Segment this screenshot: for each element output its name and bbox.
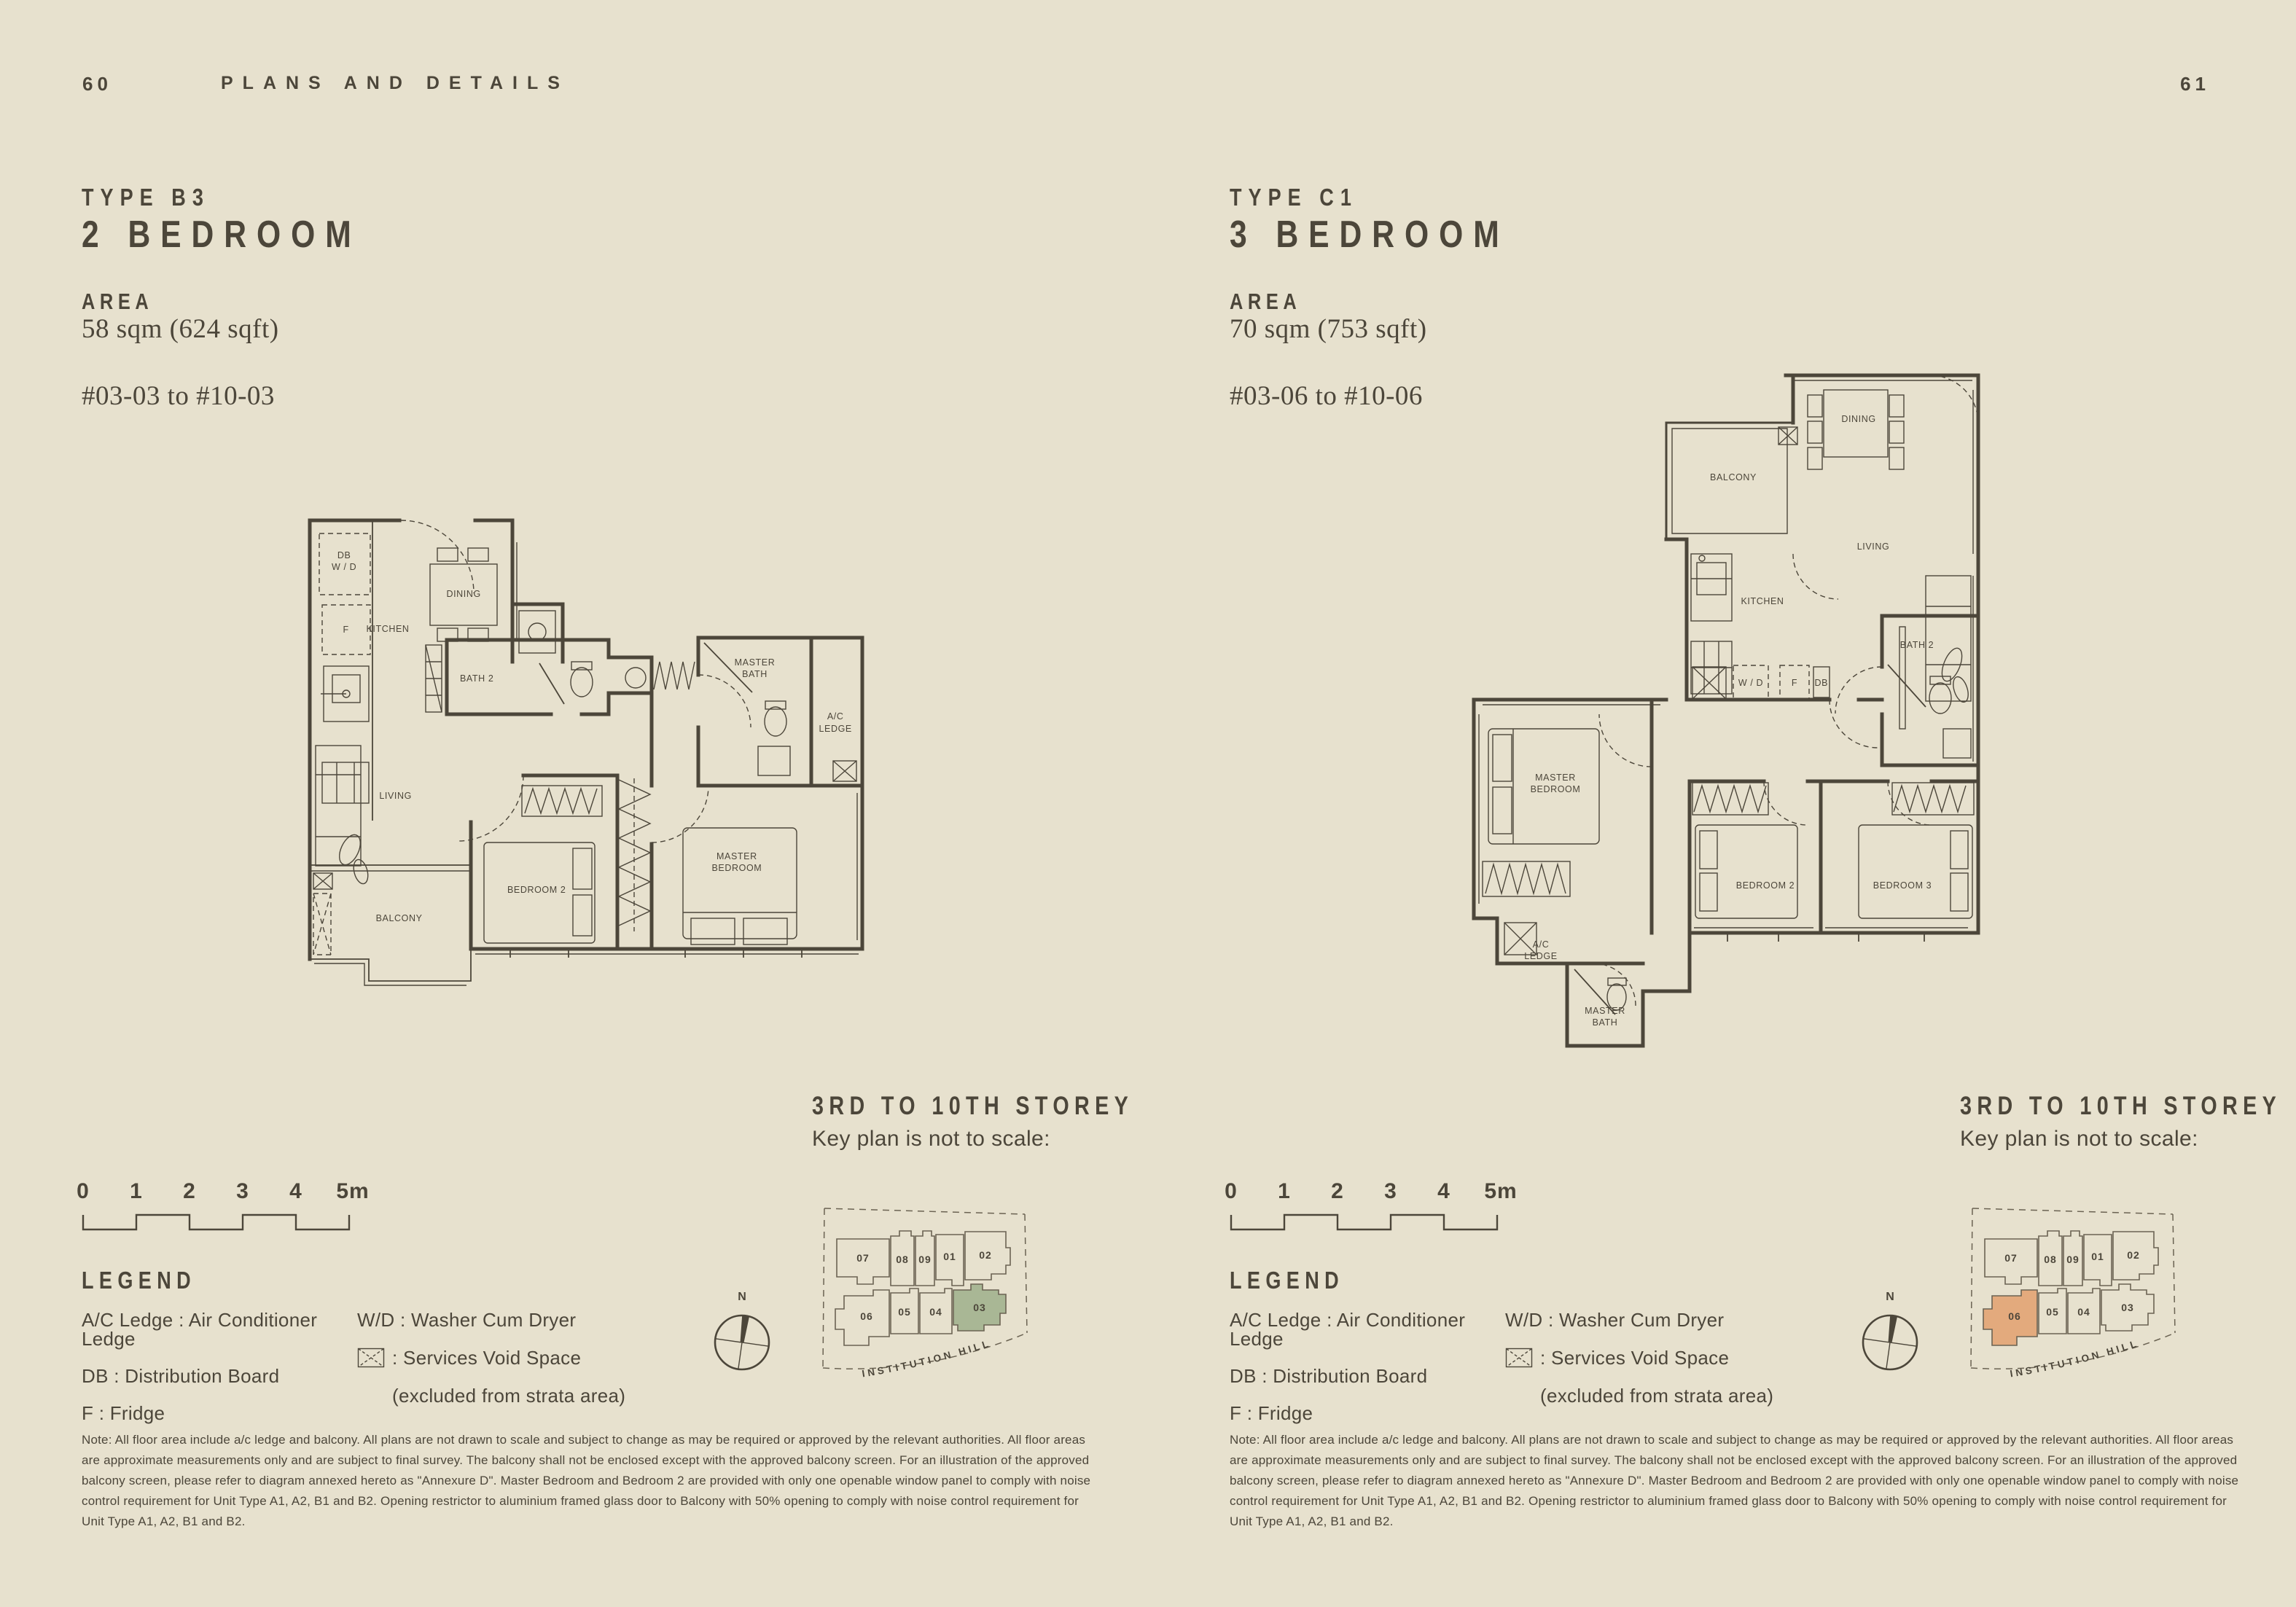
area-label: AREA	[82, 289, 169, 315]
room-label-db-wd: DB W / D	[332, 550, 356, 574]
scale-bar-numbers: 0 1 2 3 4 5m	[73, 1179, 350, 1204]
legend-wd: W/D : Washer Cum Dryer	[1505, 1310, 1811, 1329]
room-label-living: LIVING	[1857, 541, 1890, 552]
legend-wd: W/D : Washer Cum Dryer	[357, 1310, 663, 1329]
legend-db: DB : Distribution Board	[82, 1366, 344, 1385]
svg-text:04: 04	[2077, 1306, 2090, 1318]
svg-text:08: 08	[2044, 1254, 2057, 1265]
services-void-icon	[357, 1348, 385, 1368]
area-value: 58 sqm (624 sqft)	[82, 313, 279, 345]
svg-text:04: 04	[929, 1306, 942, 1318]
svg-text:01: 01	[943, 1251, 956, 1262]
key-plan-svg: 07 08 09 01 02 06 05 04 03 INSTITUTION H…	[802, 1150, 1064, 1398]
room-label-master-bedroom: MASTER BEDROOM	[711, 850, 762, 874]
storey-title: 3RD TO 10TH STOREY	[812, 1092, 1204, 1121]
room-label-bedroom3: BEDROOM 3	[1873, 880, 1932, 891]
compass: N	[708, 1289, 776, 1377]
units-range: #03-03 to #10-03	[82, 380, 275, 412]
legend-column-2: W/D : Washer Cum Dryer : Services Void S…	[1505, 1310, 1811, 1405]
key-plan-svg: 07 08 09 01 02 06 05 04 03 INSTITUTION H…	[1950, 1150, 2212, 1398]
svg-text:07: 07	[856, 1252, 870, 1264]
svg-text:03: 03	[2121, 1302, 2134, 1313]
svg-text:05: 05	[898, 1306, 911, 1318]
svg-text:01: 01	[2091, 1251, 2104, 1262]
room-label-master-bedroom: MASTER BEDROOM	[1531, 772, 1581, 796]
svg-text:N: N	[1886, 1291, 1894, 1303]
compass-icon: N	[708, 1289, 776, 1377]
running-title: PLANS AND DETAILS	[221, 73, 569, 94]
room-label-master-bath: MASTER BATH	[735, 657, 776, 681]
svg-text:08: 08	[896, 1254, 909, 1265]
room-label-fridge: F	[1792, 677, 1797, 689]
room-label-ac-ledge: A/C LEDGE	[819, 711, 851, 735]
room-label-kitchen: KITCHEN	[1741, 595, 1784, 607]
legend-column-2: W/D : Washer Cum Dryer : Services Void S…	[357, 1310, 663, 1405]
scale-bar	[1230, 1211, 1507, 1233]
road-label: INSTITUTION HILL	[861, 1337, 992, 1379]
room-label-kitchen: KITCHEN	[366, 623, 409, 635]
area-label: AREA	[1230, 289, 1317, 315]
legend-fridge: F : Fridge	[1230, 1404, 1492, 1423]
legend-column-1: A/C Ledge : Air Conditioner Ledge DB : D…	[1230, 1310, 1492, 1423]
room-label-bedroom2: BEDROOM 2	[507, 884, 566, 896]
room-label-bath2: BATH 2	[460, 672, 493, 684]
page-60: 60 PLANS AND DETAILS TYPE B3 2 BEDROOM A…	[0, 0, 1148, 1607]
storey-title: 3RD TO 10TH STOREY	[1960, 1092, 2296, 1121]
scale-bar	[82, 1211, 359, 1233]
keyplan-caption: Key plan is not to scale:	[1960, 1127, 2198, 1152]
legend-void-label: : Services Void Space	[1540, 1348, 1729, 1367]
area-value: 70 sqm (753 sqft)	[1230, 313, 1427, 345]
compass: N	[1856, 1289, 1924, 1377]
room-label-wd: W / D	[1738, 677, 1763, 689]
floorplan-type-c1: BALCONY DINING LIVING KITCHEN BATH 2 W /…	[1450, 335, 2034, 1064]
svg-text:07: 07	[2004, 1252, 2018, 1264]
room-label-dining: DINING	[446, 588, 480, 600]
legend-ac-ledge: A/C Ledge : Air Conditioner Ledge	[1230, 1310, 1492, 1348]
legend-void-note: (excluded from strata area)	[357, 1386, 663, 1405]
room-label-ac-ledge: A/C LEDGE	[1524, 939, 1557, 963]
page-number: 61	[2180, 73, 2210, 95]
room-label-bedroom2: BEDROOM 2	[1736, 880, 1795, 891]
page-title: 3 BEDROOM	[1230, 213, 1571, 257]
svg-text:06: 06	[2008, 1310, 2021, 1322]
page-title: 2 BEDROOM	[82, 213, 423, 257]
scale-bar-numbers: 0 1 2 3 4 5m	[1221, 1179, 1498, 1204]
road-label: INSTITUTION HILL	[2009, 1337, 2140, 1379]
key-plan: 07 08 09 01 02 06 05 04 03 INSTITUTION H…	[802, 1150, 1064, 1398]
svg-text:03: 03	[973, 1302, 986, 1313]
legend-void-label: : Services Void Space	[392, 1348, 581, 1367]
units-range: #03-06 to #10-06	[1230, 380, 1423, 412]
room-label-db: DB	[1815, 677, 1829, 689]
brochure-spread: { "colors": { "background": "#e7e1ce", "…	[0, 0, 2296, 1607]
type-label: TYPE C1	[1230, 184, 1386, 211]
legend-column-1: A/C Ledge : Air Conditioner Ledge DB : D…	[82, 1310, 344, 1423]
svg-text:09: 09	[918, 1254, 932, 1265]
svg-text:02: 02	[2127, 1249, 2140, 1261]
legend-title: LEGEND	[82, 1267, 222, 1294]
legend-fridge: F : Fridge	[82, 1404, 344, 1423]
svg-text:N: N	[738, 1291, 746, 1303]
page-61: 61 TYPE C1 3 BEDROOM AREA 70 sqm (753 sq…	[1148, 0, 2296, 1607]
svg-text:06: 06	[860, 1310, 873, 1322]
type-label: TYPE B3	[82, 184, 238, 211]
legend-title: LEGEND	[1230, 1267, 1370, 1294]
room-label-fridge: F	[343, 624, 348, 636]
room-label-balcony: BALCONY	[376, 912, 423, 923]
compass-icon: N	[1856, 1289, 1924, 1377]
room-label-balcony: BALCONY	[1710, 472, 1757, 483]
keyplan-caption: Key plan is not to scale:	[812, 1127, 1050, 1152]
services-void-icon	[1505, 1348, 1533, 1368]
room-label-living: LIVING	[379, 789, 412, 801]
footnote: Note: All floor area include a/c ledge a…	[82, 1430, 1098, 1532]
svg-text:05: 05	[2046, 1306, 2059, 1318]
room-label-dining: DINING	[1841, 413, 1875, 425]
svg-text:09: 09	[2066, 1254, 2080, 1265]
room-label-bath2: BATH 2	[1900, 639, 1934, 651]
legend-ac-ledge: A/C Ledge : Air Conditioner Ledge	[82, 1310, 344, 1348]
svg-text:02: 02	[979, 1249, 992, 1261]
footnote: Note: All floor area include a/c ledge a…	[1230, 1430, 2246, 1532]
floorplan-type-b3: DB W / D F KITCHEN DINING BATH 2 MASTER …	[292, 487, 889, 997]
room-label-master-bath: MASTER BATH	[1585, 1005, 1625, 1029]
legend-db: DB : Distribution Board	[1230, 1366, 1492, 1385]
legend-void-note: (excluded from strata area)	[1505, 1386, 1811, 1405]
key-plan: 07 08 09 01 02 06 05 04 03 INSTITUTION H…	[1950, 1150, 2212, 1398]
page-number: 60	[82, 73, 112, 95]
